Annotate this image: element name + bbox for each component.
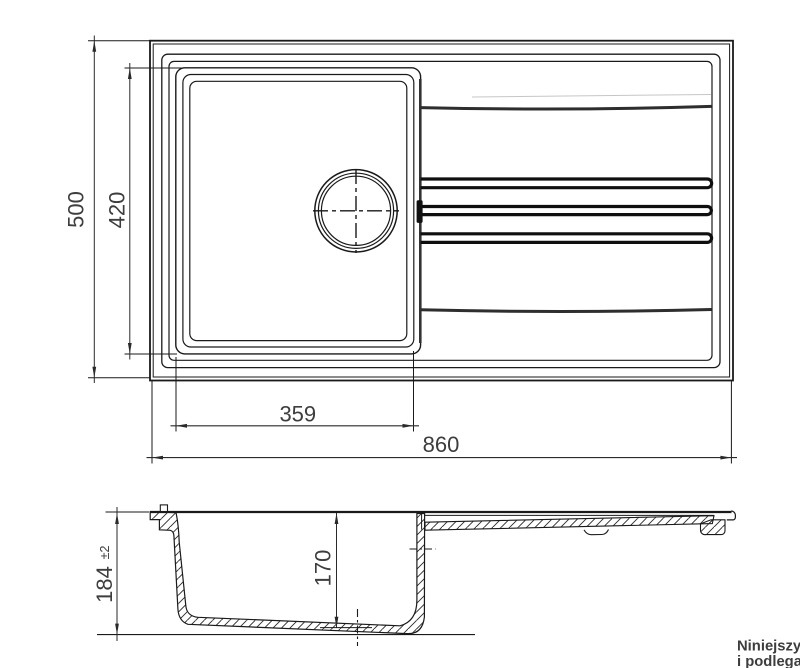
svg-text:860: 860 [423,432,460,457]
svg-text:Niniejszy: Niniejszy [737,639,800,655]
svg-text:359: 359 [279,401,316,426]
svg-text:500: 500 [64,191,89,228]
svg-text:i podlega: i podlega [737,654,800,668]
svg-text:420: 420 [104,192,129,229]
svg-text:170: 170 [311,550,336,587]
svg-text:±2: ±2 [98,546,112,560]
svg-text:184: 184 [92,566,117,603]
